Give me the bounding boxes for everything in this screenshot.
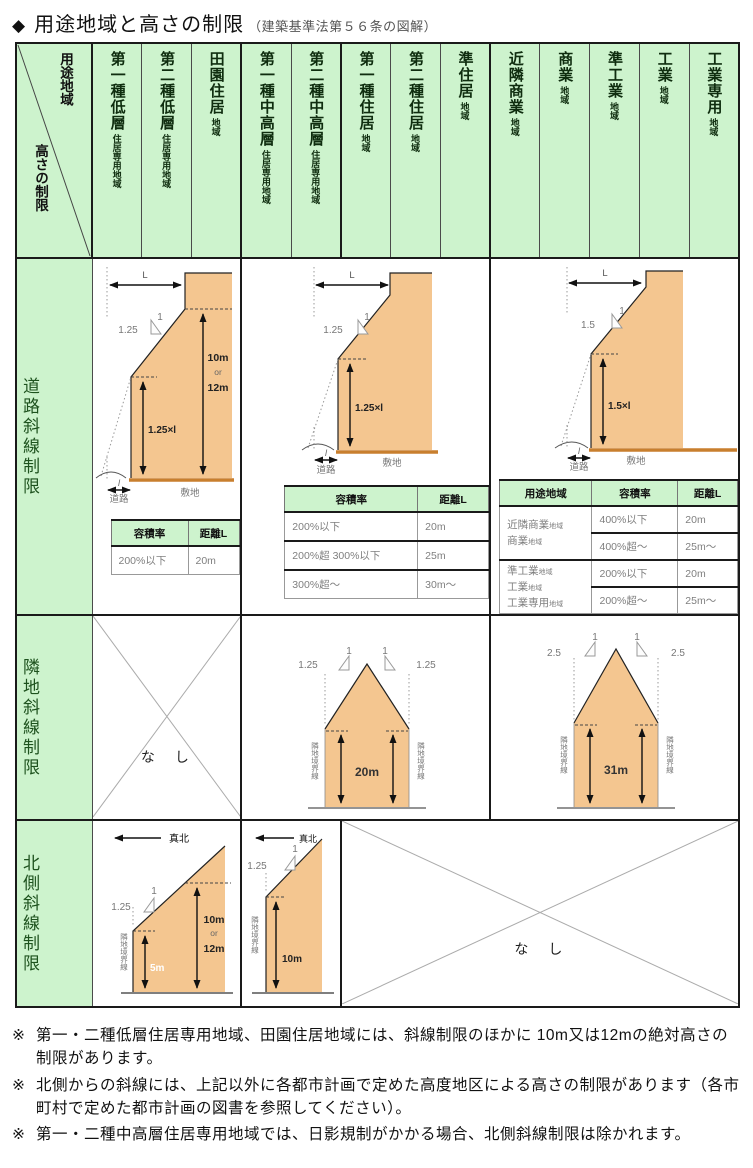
svg-text:l: l [118,478,121,488]
svg-text:1.25×l: 1.25×l [148,425,176,436]
col-sub: 地域 [559,86,569,104]
svg-text:隣地境界線: 隣地境界線 [665,735,674,774]
mini-cell: 25m〜 [678,587,738,614]
district-cell: 準工業地域 工業地域 工業専用地域 [500,560,592,614]
col-main: 第一種住居 [357,51,374,131]
col-main: 第一種中高層 [258,51,275,147]
col-sub: 地域 [410,134,420,152]
slope-ratio-triangle-icon [637,642,647,656]
svg-text:1: 1 [293,844,299,855]
svg-text:道路: 道路 [570,461,590,471]
svg-text:道路: 道路 [317,464,337,475]
mini-cell: 200%以下 [111,546,188,575]
svg-text:2.5: 2.5 [547,648,561,659]
column-header: 第一種中高層住居専用地域 [241,43,291,258]
mini-cell: 25m〜 [678,533,738,560]
mini-cell: 20m [678,560,738,587]
svg-text:1.25: 1.25 [299,660,319,671]
far-distance-table-a: 容積率 距離L 200%以下 20m [111,519,240,575]
col-main: 工業専用 [705,51,722,115]
slope-ratio-triangle-icon [585,642,595,656]
svg-text:1.25: 1.25 [248,861,268,872]
corner-diagonal [17,44,91,257]
svg-text:5m: 5m [150,963,165,974]
note-text: 第一・二種中高層住居専用地域では、日影規制がかかる場合、北側斜線制限は除かれます… [36,1123,743,1146]
svg-text:L: L [142,270,147,281]
mini-cell: 400%超〜 [592,533,678,560]
north-slope-cell-lowrise: 真北 5m 10m or 12m 1 1.25 [92,820,241,1007]
adjacent-slope-diagram-20m: 20m 1 1 1.25 1.25 隣地境界線 隣地境界線 [242,616,491,817]
column-header: 工業地域 [639,43,689,258]
col-main: 第二種中高層 [307,51,324,147]
north-slope-diagram-lowrise: 真北 5m 10m or 12m 1 1.25 [93,821,239,1005]
mini-header: 用途地域 [500,480,592,506]
note-marker: ※ [12,1123,36,1146]
title-text: 用途地域と高さの制限 [34,8,244,37]
road-slope-diagram-residential: L 1.25×l 1 1.25 l [242,259,491,475]
col-sub: 住居専用地域 [112,134,122,188]
svg-text:敷地: 敷地 [383,457,403,469]
col-sub: 地域 [609,102,619,120]
slope-ratio-triangle-icon [144,898,154,912]
svg-text:1.5×l: 1.5×l [608,401,631,412]
zoning-height-matrix: 用途地域 高さの制限 第一種低層住居専用地域 第二種低層住居専用地域 田園住居地… [15,42,740,1008]
col-main: 準工業 [606,51,623,99]
mini-cell: 200%超 300%以下 [285,541,418,570]
road-slope-diagram-lowrise: L 10m or 12m 1.25×l 1 1.25 [93,259,239,505]
svg-text:隣地境界線: 隣地境界線 [119,932,128,971]
slope-ratio-triangle-icon [385,656,395,670]
svg-text:12m: 12m [207,382,228,394]
col-sub: 地域 [510,118,520,136]
col-sub: 住居専用地域 [161,134,171,188]
corner-label-height: 高さの制限 [30,144,50,212]
column-header: 田園住居地域 [192,43,242,258]
svg-text:1.25: 1.25 [118,325,138,336]
column-header: 工業専用地域 [689,43,739,258]
svg-text:真北: 真北 [299,833,317,844]
svg-text:10m: 10m [207,352,228,364]
column-header: 第二種中高層住居専用地域 [291,43,341,258]
note-text: 第一・二種低層住居専用地域、田園住居地域には、斜線制限のほかに 10m又は12m… [36,1024,743,1071]
svg-text:敷地: 敷地 [180,487,200,499]
col-sub: 地域 [659,86,669,104]
road-slope-cell-residential: L 1.25×l 1 1.25 l [241,258,490,615]
svg-text:1.25: 1.25 [324,325,344,336]
district-cell: 近隣商業地域 商業地域 [500,506,592,560]
column-header: 近隣商業地域 [490,43,540,258]
svg-text:10m: 10m [203,914,224,926]
col-main: 準住居 [456,51,473,99]
mini-cell: 300%超〜 [285,570,418,599]
col-sub: 住居専用地域 [261,150,271,204]
col-sub: 地域 [211,118,221,136]
mini-header: 距離L [678,480,738,506]
col-main: 第二種低層 [158,51,175,131]
svg-text:1.25: 1.25 [111,902,131,913]
row-label-north-slope: 北側斜線制限 [16,820,92,1007]
col-main: 田園住居 [208,51,225,115]
svg-text:隣地境界線: 隣地境界線 [417,741,426,780]
svg-text:1: 1 [365,312,371,323]
col-main: 第一種低層 [109,51,126,131]
title-subtext: （建築基準法第５６条の図解） [248,16,437,35]
svg-text:1.25: 1.25 [417,660,437,671]
svg-text:1: 1 [619,306,625,317]
svg-text:or: or [214,367,222,377]
svg-text:隣地境界線: 隣地境界線 [251,915,260,954]
svg-text:真北: 真北 [169,832,189,845]
adjacent-slope-cell-residential: 20m 1 1 1.25 1.25 隣地境界線 隣地境界線 [241,615,490,820]
mini-cell: 20m [188,546,239,575]
svg-text:L: L [602,268,607,279]
north-slope-cell-midhigh: 真北 10m 1 1.25 隣地境界線 [241,820,341,1007]
column-header: 第一種住居地域 [341,43,391,258]
mini-cell: 200%以下 [592,560,678,587]
column-header: 第二種低層住居専用地域 [142,43,192,258]
corner-label-zoning: 用途地域 [55,52,75,106]
svg-text:1: 1 [151,886,157,897]
svg-text:20m: 20m [355,765,379,779]
mini-cell: 200%以下 [285,512,418,541]
mini-header: 容積率 [285,486,418,512]
svg-text:l: l [578,446,581,456]
mini-cell: 25m [418,541,489,570]
mini-cell: 200%超〜 [592,587,678,614]
row-label-road-slope: 道路斜線制限 [16,258,92,615]
svg-text:2.5: 2.5 [671,648,685,659]
column-header: 商業地域 [540,43,590,258]
svg-text:31m: 31m [604,763,628,777]
column-header: 第一種低層住居専用地域 [92,43,142,258]
svg-text:10m: 10m [282,954,302,965]
road-slope-cell-lowrise: L 10m or 12m 1.25×l 1 1.25 [92,258,241,615]
mini-header: 容積率 [592,480,678,506]
svg-text:1: 1 [157,312,163,323]
mini-header: 容積率 [111,520,188,546]
road-slope-cell-commercial: L 1.5×l 1 1.5 l [490,258,739,615]
footnote: ※ 北側からの斜線には、上記以外に各都市計画で定めた高度地区による高さの制限があ… [12,1074,743,1121]
mini-cell: 400%以下 [592,506,678,533]
slope-ratio-triangle-icon [285,856,295,870]
footnotes: ※ 第一・二種低層住居専用地域、田園住居地域には、斜線制限のほかに 10m又は1… [12,1024,743,1146]
svg-text:or: or [210,928,218,938]
col-sub: 地域 [459,102,469,120]
road-slope-diagram-commercial: L 1.5×l 1 1.5 l [491,259,740,471]
mini-cell: 20m [678,506,738,533]
svg-text:1: 1 [634,632,640,643]
column-header: 第二種住居地域 [391,43,441,258]
col-main: 第二種住居 [407,51,424,131]
mini-header: 距離L [418,486,489,512]
none-label: な し [141,747,192,767]
far-distance-table-c: 用途地域 容積率 距離L 近隣商業地域 商業地域 400%以下 20m [499,479,738,614]
col-main: 商業 [556,51,573,83]
north-slope-diagram-midhigh: 真北 10m 1 1.25 隣地境界線 [242,821,341,1005]
svg-text:1.5: 1.5 [581,320,595,331]
svg-text:l: l [325,448,328,458]
mini-header: 距離L [188,520,239,546]
svg-text:敷地: 敷地 [627,455,647,467]
svg-text:隣地境界線: 隣地境界線 [559,735,568,774]
svg-text:L: L [350,270,355,281]
page-title: ◆ 用途地域と高さの制限 （建築基準法第５６条の図解） [12,8,745,37]
col-sub: 地域 [708,118,718,136]
svg-text:道路: 道路 [109,493,129,505]
note-text: 北側からの斜線には、上記以外に各都市計画で定めた高度地区による高さの制限がありま… [36,1074,743,1121]
column-header: 準工業地域 [590,43,640,258]
none-cross-icon [93,616,241,817]
col-sub: 住居専用地域 [310,150,320,204]
note-marker: ※ [12,1074,36,1121]
corner-cell: 用途地域 高さの制限 [16,43,92,258]
far-distance-table-b: 容積率 距離L 200%以下 20m 200%超 300%以下 25m 30 [284,485,489,599]
north-none-cell: な し [341,820,739,1007]
svg-text:1.25×l: 1.25×l [355,403,383,414]
col-sub: 地域 [360,134,370,152]
slope-ratio-triangle-icon [339,656,349,670]
col-main: 工業 [656,51,673,83]
page: ◆ 用途地域と高さの制限 （建築基準法第５６条の図解） 用途地域 高さの制限 第… [0,0,753,1146]
mini-cell: 30m〜 [418,570,489,599]
footnote: ※ 第一・二種中高層住居専用地域では、日影規制がかかる場合、北側斜線制限は除かれ… [12,1123,743,1146]
svg-text:1: 1 [383,646,389,657]
diamond-bullet-icon: ◆ [12,16,25,36]
none-cross-icon [342,821,738,1004]
svg-text:12m: 12m [203,943,224,955]
adjacent-slope-diagram-31m: 31m 1 1 2.5 2.5 隣地境界線 隣地境界線 [491,616,740,817]
none-label: な し [514,939,565,959]
mini-cell: 20m [418,512,489,541]
adjacent-none-cell: な し [92,615,241,820]
footnote: ※ 第一・二種低層住居専用地域、田園住居地域には、斜線制限のほかに 10m又は1… [12,1024,743,1071]
column-header: 準住居地域 [440,43,490,258]
note-marker: ※ [12,1024,36,1071]
row-label-adjacent-slope: 隣地斜線制限 [16,615,92,820]
col-main: 近隣商業 [507,51,524,115]
adjacent-slope-cell-commercial: 31m 1 1 2.5 2.5 隣地境界線 隣地境界線 [490,615,739,820]
svg-text:隣地境界線: 隣地境界線 [311,741,320,780]
